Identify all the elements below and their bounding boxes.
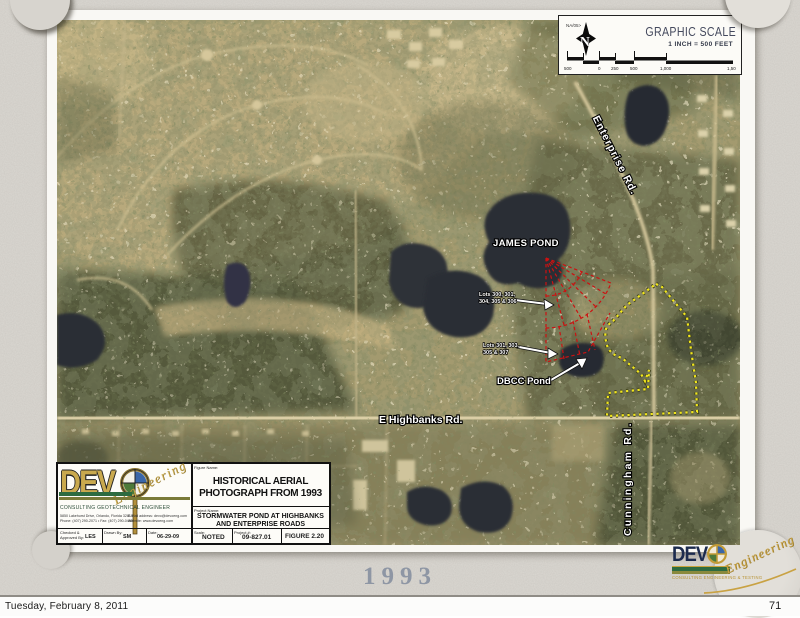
svg-text:500: 500 [630,66,638,71]
svg-text:Lots 301, 303,: Lots 301, 303, [483,343,520,349]
svg-text:0: 0 [598,66,601,71]
svg-text:500: 500 [564,66,572,71]
svg-text:DBCC Pond: DBCC Pond [497,376,551,387]
svg-text:250: 250 [611,66,619,71]
svg-text:E Highbanks Rd.: E Highbanks Rd. [379,414,463,426]
svg-text:305 & 307: 305 & 307 [483,350,508,356]
svg-text:JAMES POND: JAMES POND [493,238,559,249]
svg-text:304, 305 & 306: 304, 305 & 306 [479,299,517,305]
svg-text:Lots 300, 301,: Lots 300, 301, [479,292,516,298]
svg-text:Cunningham Rd.: Cunningham Rd. [622,421,634,536]
svg-text:1,50: 1,50 [727,66,736,71]
svg-text:1,000: 1,000 [660,66,672,71]
